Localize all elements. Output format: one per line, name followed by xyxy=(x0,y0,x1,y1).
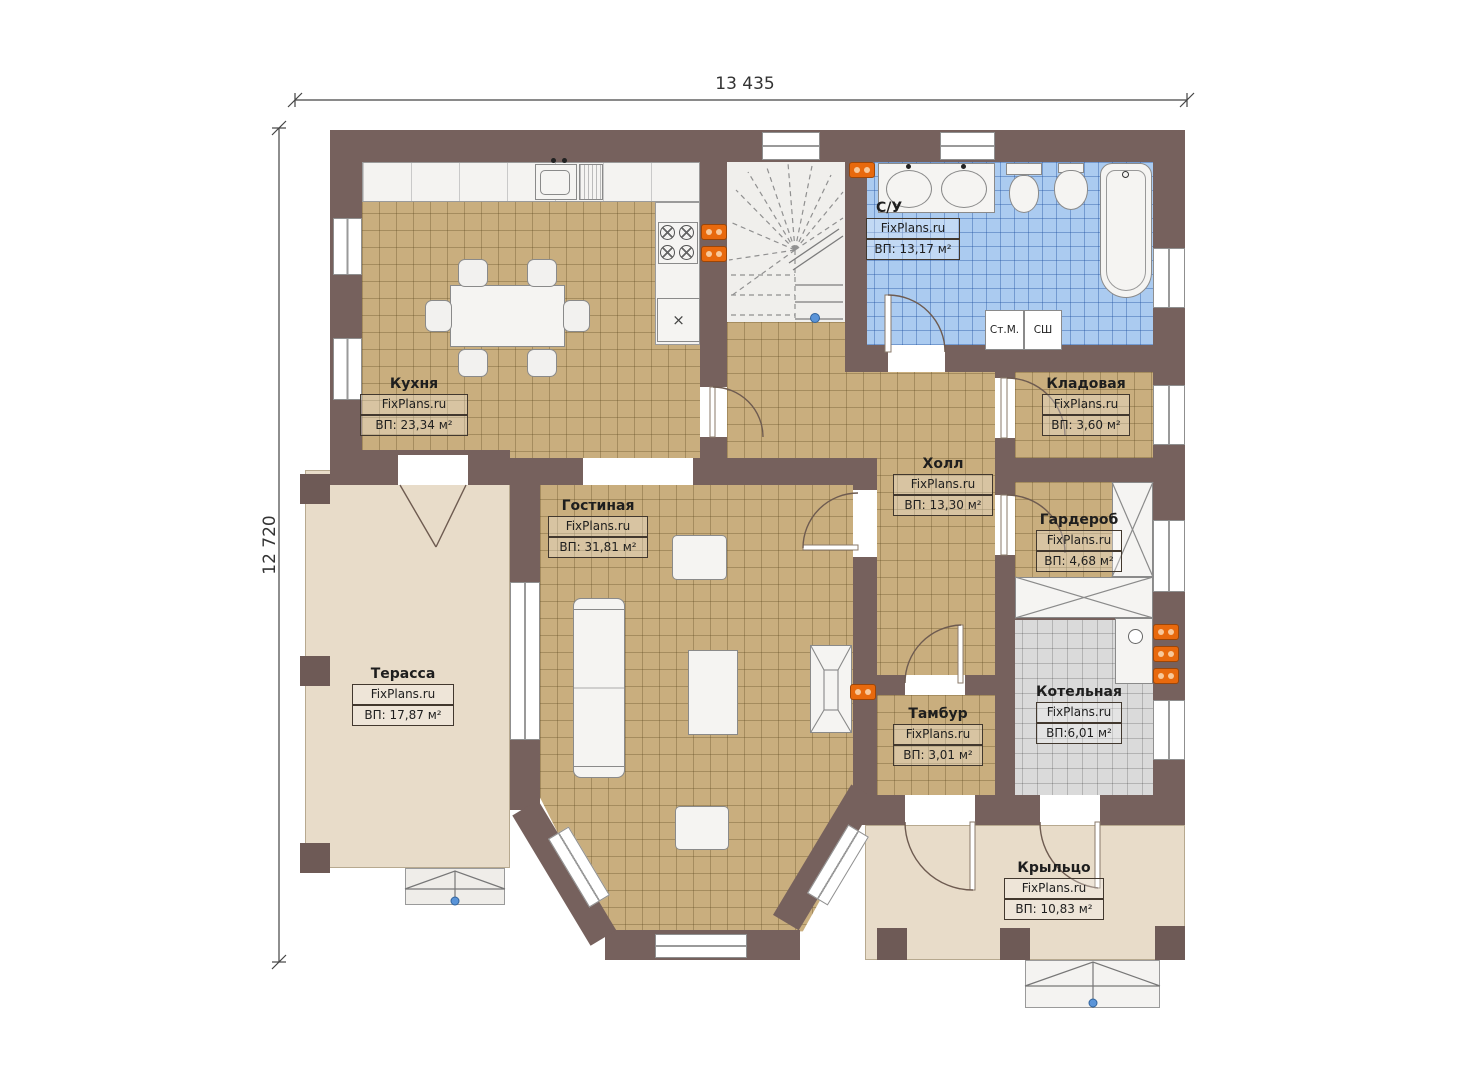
room-site: FixPlans.ru xyxy=(893,474,993,495)
window-living-terrace xyxy=(510,582,540,740)
radiator-icon xyxy=(1153,624,1179,640)
bathtub-faucet xyxy=(1122,171,1129,178)
room-site: FixPlans.ru xyxy=(360,394,468,415)
opening-vestibule-hall-door xyxy=(905,675,965,695)
window-wardrobe-right xyxy=(1153,520,1185,592)
faucet-dot xyxy=(906,164,911,169)
room-site: FixPlans.ru xyxy=(1042,394,1130,415)
room-area: ВП: 4,68 м² xyxy=(1036,551,1122,572)
porch-pillar xyxy=(1155,926,1185,960)
room-site: FixPlans.ru xyxy=(548,516,648,537)
room-label-living: Гостиная FixPlans.ru ВП: 31,81 м² xyxy=(548,498,648,558)
window-top-stairs xyxy=(762,132,820,160)
dryer-label: СШ xyxy=(1034,324,1053,336)
window-bay-bottom xyxy=(655,934,747,958)
opening-vestibule-porch-door xyxy=(905,795,975,825)
room-label-bathroom: С/У FixPlans.ru ВП: 13,17 м² xyxy=(866,200,960,260)
room-area: ВП: 3,60 м² xyxy=(1042,415,1130,436)
radiator-icon xyxy=(1153,646,1179,662)
dining-chair xyxy=(527,349,557,377)
stove-burner xyxy=(660,225,675,240)
dining-chair xyxy=(563,300,590,332)
room-site: FixPlans.ru xyxy=(1036,702,1122,723)
armchair-top xyxy=(672,535,727,580)
wall-left xyxy=(330,130,362,485)
faucet-dot xyxy=(562,158,567,163)
radiator-icon xyxy=(850,684,876,700)
room-site: FixPlans.ru xyxy=(866,218,960,239)
opening-boiler-porch-door xyxy=(1040,795,1100,825)
opening-kitchen-living xyxy=(583,458,693,485)
staircase-area xyxy=(727,162,845,322)
kitchen-drainer xyxy=(579,164,603,200)
washing-machine: Ст.М. xyxy=(985,310,1024,350)
room-area: ВП: 31,81 м² xyxy=(548,537,648,558)
terrace-post xyxy=(300,843,330,873)
room-label-terrace: Терасса FixPlans.ru ВП: 17,87 м² xyxy=(352,666,454,726)
dimension-height-label: 12 720 xyxy=(260,505,280,585)
faucet-dot xyxy=(551,158,556,163)
room-site: FixPlans.ru xyxy=(1004,878,1104,899)
stove-burner xyxy=(679,245,694,260)
wall-right xyxy=(1153,130,1185,795)
room-area: ВП: 23,34 м² xyxy=(360,415,468,436)
room-label-storage: Кладовая FixPlans.ru ВП: 3,60 м² xyxy=(1042,376,1130,436)
room-name: Тамбур xyxy=(893,706,983,722)
opening-kitchen-hall-door xyxy=(700,387,727,437)
room-name: Кладовая xyxy=(1042,376,1130,392)
wall-stairs-bathroom xyxy=(845,162,867,372)
toilet-bowl xyxy=(1009,175,1039,213)
room-label-porch: Крыльцо FixPlans.ru ВП: 10,83 м² xyxy=(1004,860,1104,920)
room-name: Гардероб xyxy=(1036,512,1122,528)
terrace-post xyxy=(300,474,330,504)
radiator-icon xyxy=(701,246,727,262)
opening-bathroom-door xyxy=(888,345,945,372)
room-label-kitchen: Кухня FixPlans.ru ВП: 23,34 м² xyxy=(360,376,468,436)
room-site: FixPlans.ru xyxy=(352,684,454,705)
stove-burner xyxy=(660,245,675,260)
room-area: ВП: 13,30 м² xyxy=(893,495,993,516)
faucet-dot xyxy=(961,164,966,169)
sofa xyxy=(573,598,625,778)
wall-living-top-a xyxy=(510,458,583,485)
wall-living-top-b xyxy=(693,458,853,485)
bathtub-inner xyxy=(1106,170,1146,291)
floor-plan: × Ст.М. СШ xyxy=(0,0,1474,1080)
toilet-tank xyxy=(1006,163,1042,175)
wall-top xyxy=(330,130,1185,162)
stove-burner xyxy=(679,225,694,240)
bidet xyxy=(1054,170,1088,210)
sofa-armrest xyxy=(573,598,625,610)
opening-storage-door xyxy=(995,378,1015,438)
terrace-post xyxy=(300,656,330,686)
dining-table xyxy=(450,285,565,347)
opening-wardrobe-door xyxy=(995,495,1015,555)
boiler-dial xyxy=(1128,629,1143,644)
dining-chair xyxy=(527,259,557,287)
radiator-icon xyxy=(701,224,727,240)
radiator-icon xyxy=(849,162,875,178)
wardrobe-closet-bottom xyxy=(1015,577,1153,618)
fireplace xyxy=(810,645,852,733)
room-name: С/У xyxy=(866,200,960,216)
dining-chair xyxy=(458,349,488,377)
wall-storage-wardrobe xyxy=(1015,458,1153,482)
room-label-boiler: Котельная FixPlans.ru ВП:6,01 м² xyxy=(1036,684,1122,744)
kitchen-sink-basin xyxy=(540,170,570,195)
opening-kitchen-terrace-door xyxy=(398,455,468,485)
opening-living-door xyxy=(853,490,877,557)
kitchen-counter xyxy=(362,162,700,202)
coffee-table xyxy=(688,650,738,735)
window-kitchen-left-2 xyxy=(333,338,362,400)
window-storage-right xyxy=(1153,385,1185,445)
boiler-unit xyxy=(1115,618,1153,684)
dryer: СШ xyxy=(1024,310,1062,350)
room-name: Гостиная xyxy=(548,498,648,514)
window-top-bathroom xyxy=(940,132,995,160)
window-boiler-right xyxy=(1153,700,1185,760)
window-bathroom-right xyxy=(1153,248,1185,308)
washing-machine-label: Ст.М. xyxy=(990,324,1019,336)
porch-pillar xyxy=(877,928,907,960)
radiator-icon xyxy=(1153,668,1179,684)
room-label-wardrobe: Гардероб FixPlans.ru ВП: 4,68 м² xyxy=(1036,512,1122,572)
armchair-bay xyxy=(675,806,729,850)
room-site: FixPlans.ru xyxy=(1036,530,1122,551)
porch-pillar xyxy=(1000,928,1030,960)
room-area: ВП: 10,83 м² xyxy=(1004,899,1104,920)
dimension-width-label: 13 435 xyxy=(695,74,795,94)
room-label-hall: Холл FixPlans.ru ВП: 13,30 м² xyxy=(893,456,993,516)
sofa-armrest xyxy=(573,766,625,778)
terrace-steps xyxy=(405,868,505,905)
dining-chair xyxy=(425,300,452,332)
room-name: Кухня xyxy=(360,376,468,392)
room-name: Котельная xyxy=(1036,684,1122,700)
room-name: Крыльцо xyxy=(1004,860,1104,876)
room-area: ВП:6,01 м² xyxy=(1036,723,1122,744)
window-kitchen-left-1 xyxy=(333,218,362,275)
room-area: ВП: 17,87 м² xyxy=(352,705,454,726)
room-area: ВП: 13,17 м² xyxy=(866,239,960,260)
room-area: ВП: 3,01 м² xyxy=(893,745,983,766)
kitchen-cabinet: × xyxy=(657,298,700,342)
room-label-vestibule: Тамбур FixPlans.ru ВП: 3,01 м² xyxy=(893,706,983,766)
dining-chair xyxy=(458,259,488,287)
room-name: Терасса xyxy=(352,666,454,682)
room-name: Холл xyxy=(893,456,993,472)
room-site: FixPlans.ru xyxy=(893,724,983,745)
porch-steps xyxy=(1025,960,1160,1008)
